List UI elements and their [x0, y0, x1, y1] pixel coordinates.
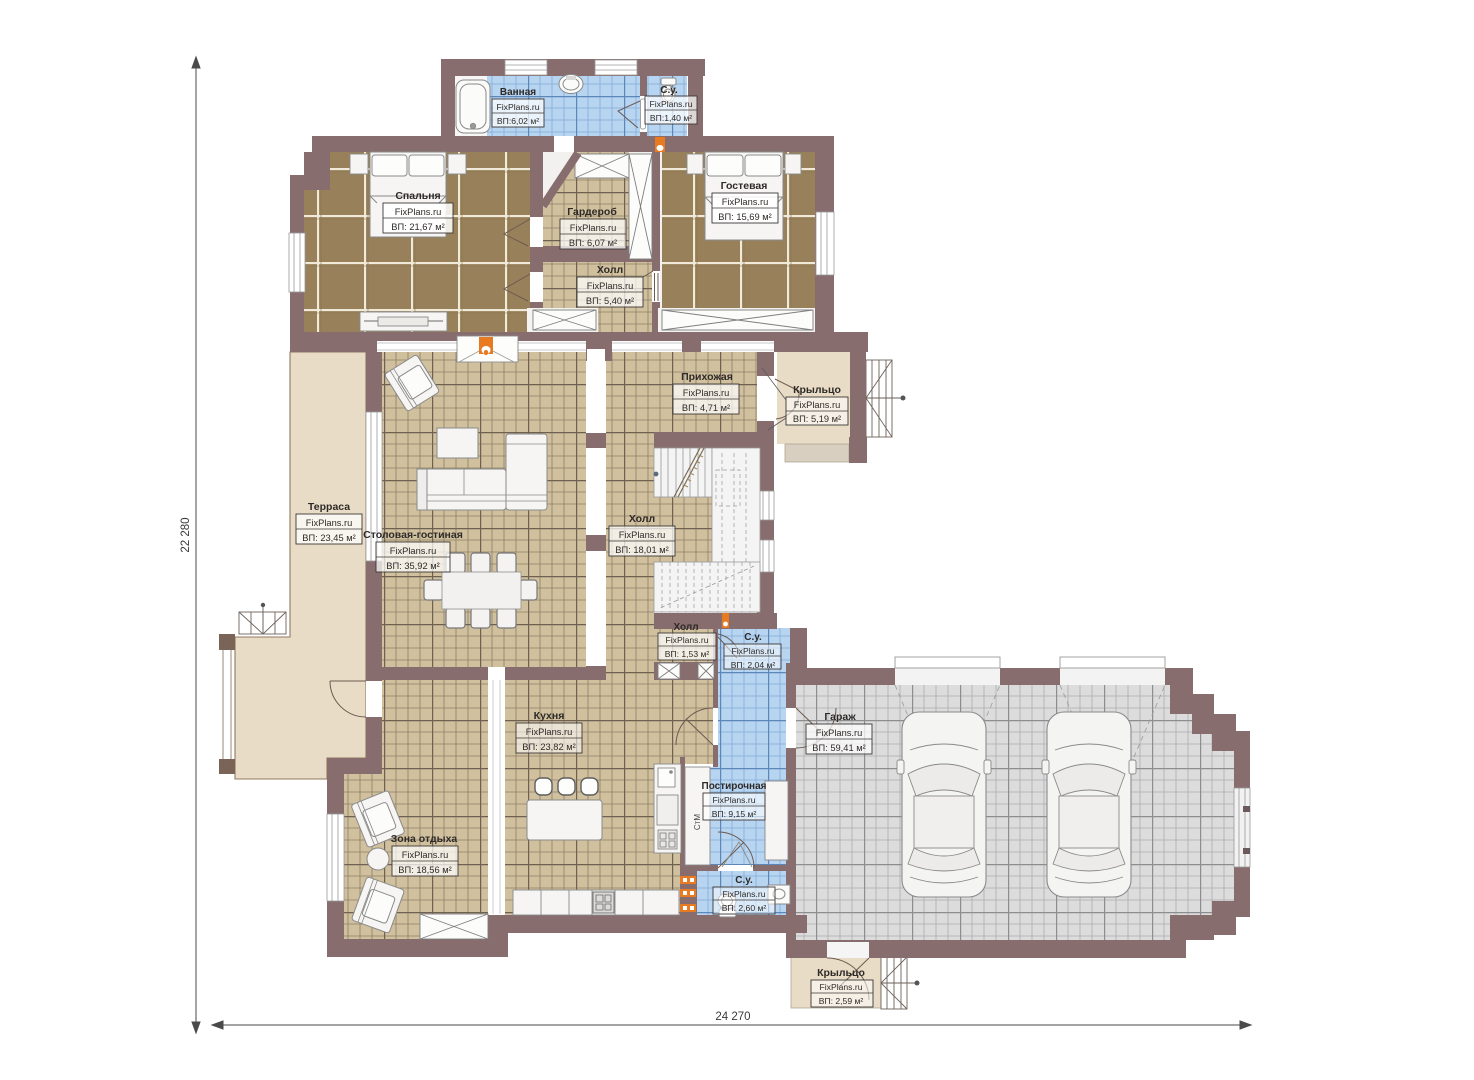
svg-text:FixPlans.ru: FixPlans.ru — [794, 400, 841, 410]
svg-text:FixPlans.ru: FixPlans.ru — [570, 223, 617, 233]
svg-text:ВП: 5,19 м²: ВП: 5,19 м² — [793, 414, 841, 424]
svg-text:ВП: 2,60 м²: ВП: 2,60 м² — [722, 903, 767, 913]
svg-text:Холл: Холл — [673, 622, 698, 633]
svg-text:ВП:1,40 м²: ВП:1,40 м² — [650, 113, 692, 123]
svg-text:FixPlans.ru: FixPlans.ru — [683, 388, 730, 398]
svg-text:Терраса: Терраса — [308, 501, 350, 513]
svg-text:Спальня: Спальня — [395, 190, 440, 202]
svg-text:Постирочная: Постирочная — [702, 781, 767, 792]
svg-text:24 270: 24 270 — [715, 1011, 750, 1023]
svg-text:ВП: 18,01 м²: ВП: 18,01 м² — [615, 545, 668, 555]
svg-text:FixPlans.ru: FixPlans.ru — [722, 197, 769, 207]
svg-text:ВП: 21,67 м²: ВП: 21,67 м² — [391, 222, 444, 232]
svg-text:ВП: 2,59 м²: ВП: 2,59 м² — [819, 996, 864, 1006]
svg-text:22 280: 22 280 — [180, 517, 192, 552]
svg-text:С.у.: С.у. — [660, 85, 678, 96]
svg-text:С.у.: С.у. — [735, 875, 753, 886]
svg-text:С.у.: С.у. — [744, 632, 762, 643]
svg-text:ВП: 15,69 м²: ВП: 15,69 м² — [718, 212, 771, 222]
svg-text:FixPlans.ru: FixPlans.ru — [820, 982, 863, 992]
svg-text:СтМ: СтМ — [693, 814, 702, 830]
svg-text:ВП: 23,82 м²: ВП: 23,82 м² — [522, 742, 575, 752]
svg-text:ВП: 2,04 м²: ВП: 2,04 м² — [731, 660, 776, 670]
svg-text:FixPlans.ru: FixPlans.ru — [732, 646, 775, 656]
svg-text:FixPlans.ru: FixPlans.ru — [306, 518, 353, 528]
svg-text:Гостевая: Гостевая — [721, 180, 768, 192]
svg-text:ВП: 59,41 м²: ВП: 59,41 м² — [812, 743, 865, 753]
svg-text:FixPlans.ru: FixPlans.ru — [497, 102, 540, 112]
svg-text:ВП: 23,45 м²: ВП: 23,45 м² — [302, 533, 355, 543]
svg-text:Кухня: Кухня — [534, 710, 565, 722]
svg-text:Холл: Холл — [597, 264, 623, 276]
svg-text:FixPlans.ru: FixPlans.ru — [587, 281, 634, 291]
svg-text:FixPlans.ru: FixPlans.ru — [402, 850, 449, 860]
svg-text:FixPlans.ru: FixPlans.ru — [723, 889, 766, 899]
svg-text:Крыльцо: Крыльцо — [793, 384, 841, 396]
svg-text:ВП: 18,56 м²: ВП: 18,56 м² — [398, 865, 451, 875]
svg-text:FixPlans.ru: FixPlans.ru — [390, 546, 437, 556]
svg-text:ВП: 9,15 м²: ВП: 9,15 м² — [712, 809, 757, 819]
svg-text:FixPlans.ru: FixPlans.ru — [713, 795, 756, 805]
svg-text:Прихожая: Прихожая — [681, 371, 733, 383]
svg-text:Гараж: Гараж — [824, 711, 856, 723]
svg-text:Крыльцо: Крыльцо — [817, 967, 865, 979]
svg-text:Столовая-гостиная: Столовая-гостиная — [363, 529, 463, 541]
svg-text:ВП: 35,92 м²: ВП: 35,92 м² — [386, 561, 439, 571]
svg-text:FixPlans.ru: FixPlans.ru — [395, 207, 442, 217]
svg-text:FixPlans.ru: FixPlans.ru — [666, 635, 709, 645]
svg-text:ВП: 4,71 м²: ВП: 4,71 м² — [682, 403, 730, 413]
svg-text:ВП: 1,53 м²: ВП: 1,53 м² — [665, 649, 710, 659]
svg-text:FixPlans.ru: FixPlans.ru — [650, 99, 693, 109]
svg-text:ВП: 6,07 м²: ВП: 6,07 м² — [569, 238, 617, 248]
svg-text:Холл: Холл — [629, 513, 655, 525]
svg-text:FixPlans.ru: FixPlans.ru — [526, 727, 573, 737]
svg-text:Гардероб: Гардероб — [567, 206, 617, 218]
svg-text:FixPlans.ru: FixPlans.ru — [816, 728, 863, 738]
svg-text:ВП:6,02 м²: ВП:6,02 м² — [497, 116, 539, 126]
svg-text:FixPlans.ru: FixPlans.ru — [619, 530, 666, 540]
svg-text:Ванная: Ванная — [500, 87, 536, 98]
svg-text:Зона отдыха: Зона отдыха — [391, 833, 458, 845]
svg-text:ВП: 5,40 м²: ВП: 5,40 м² — [586, 296, 634, 306]
